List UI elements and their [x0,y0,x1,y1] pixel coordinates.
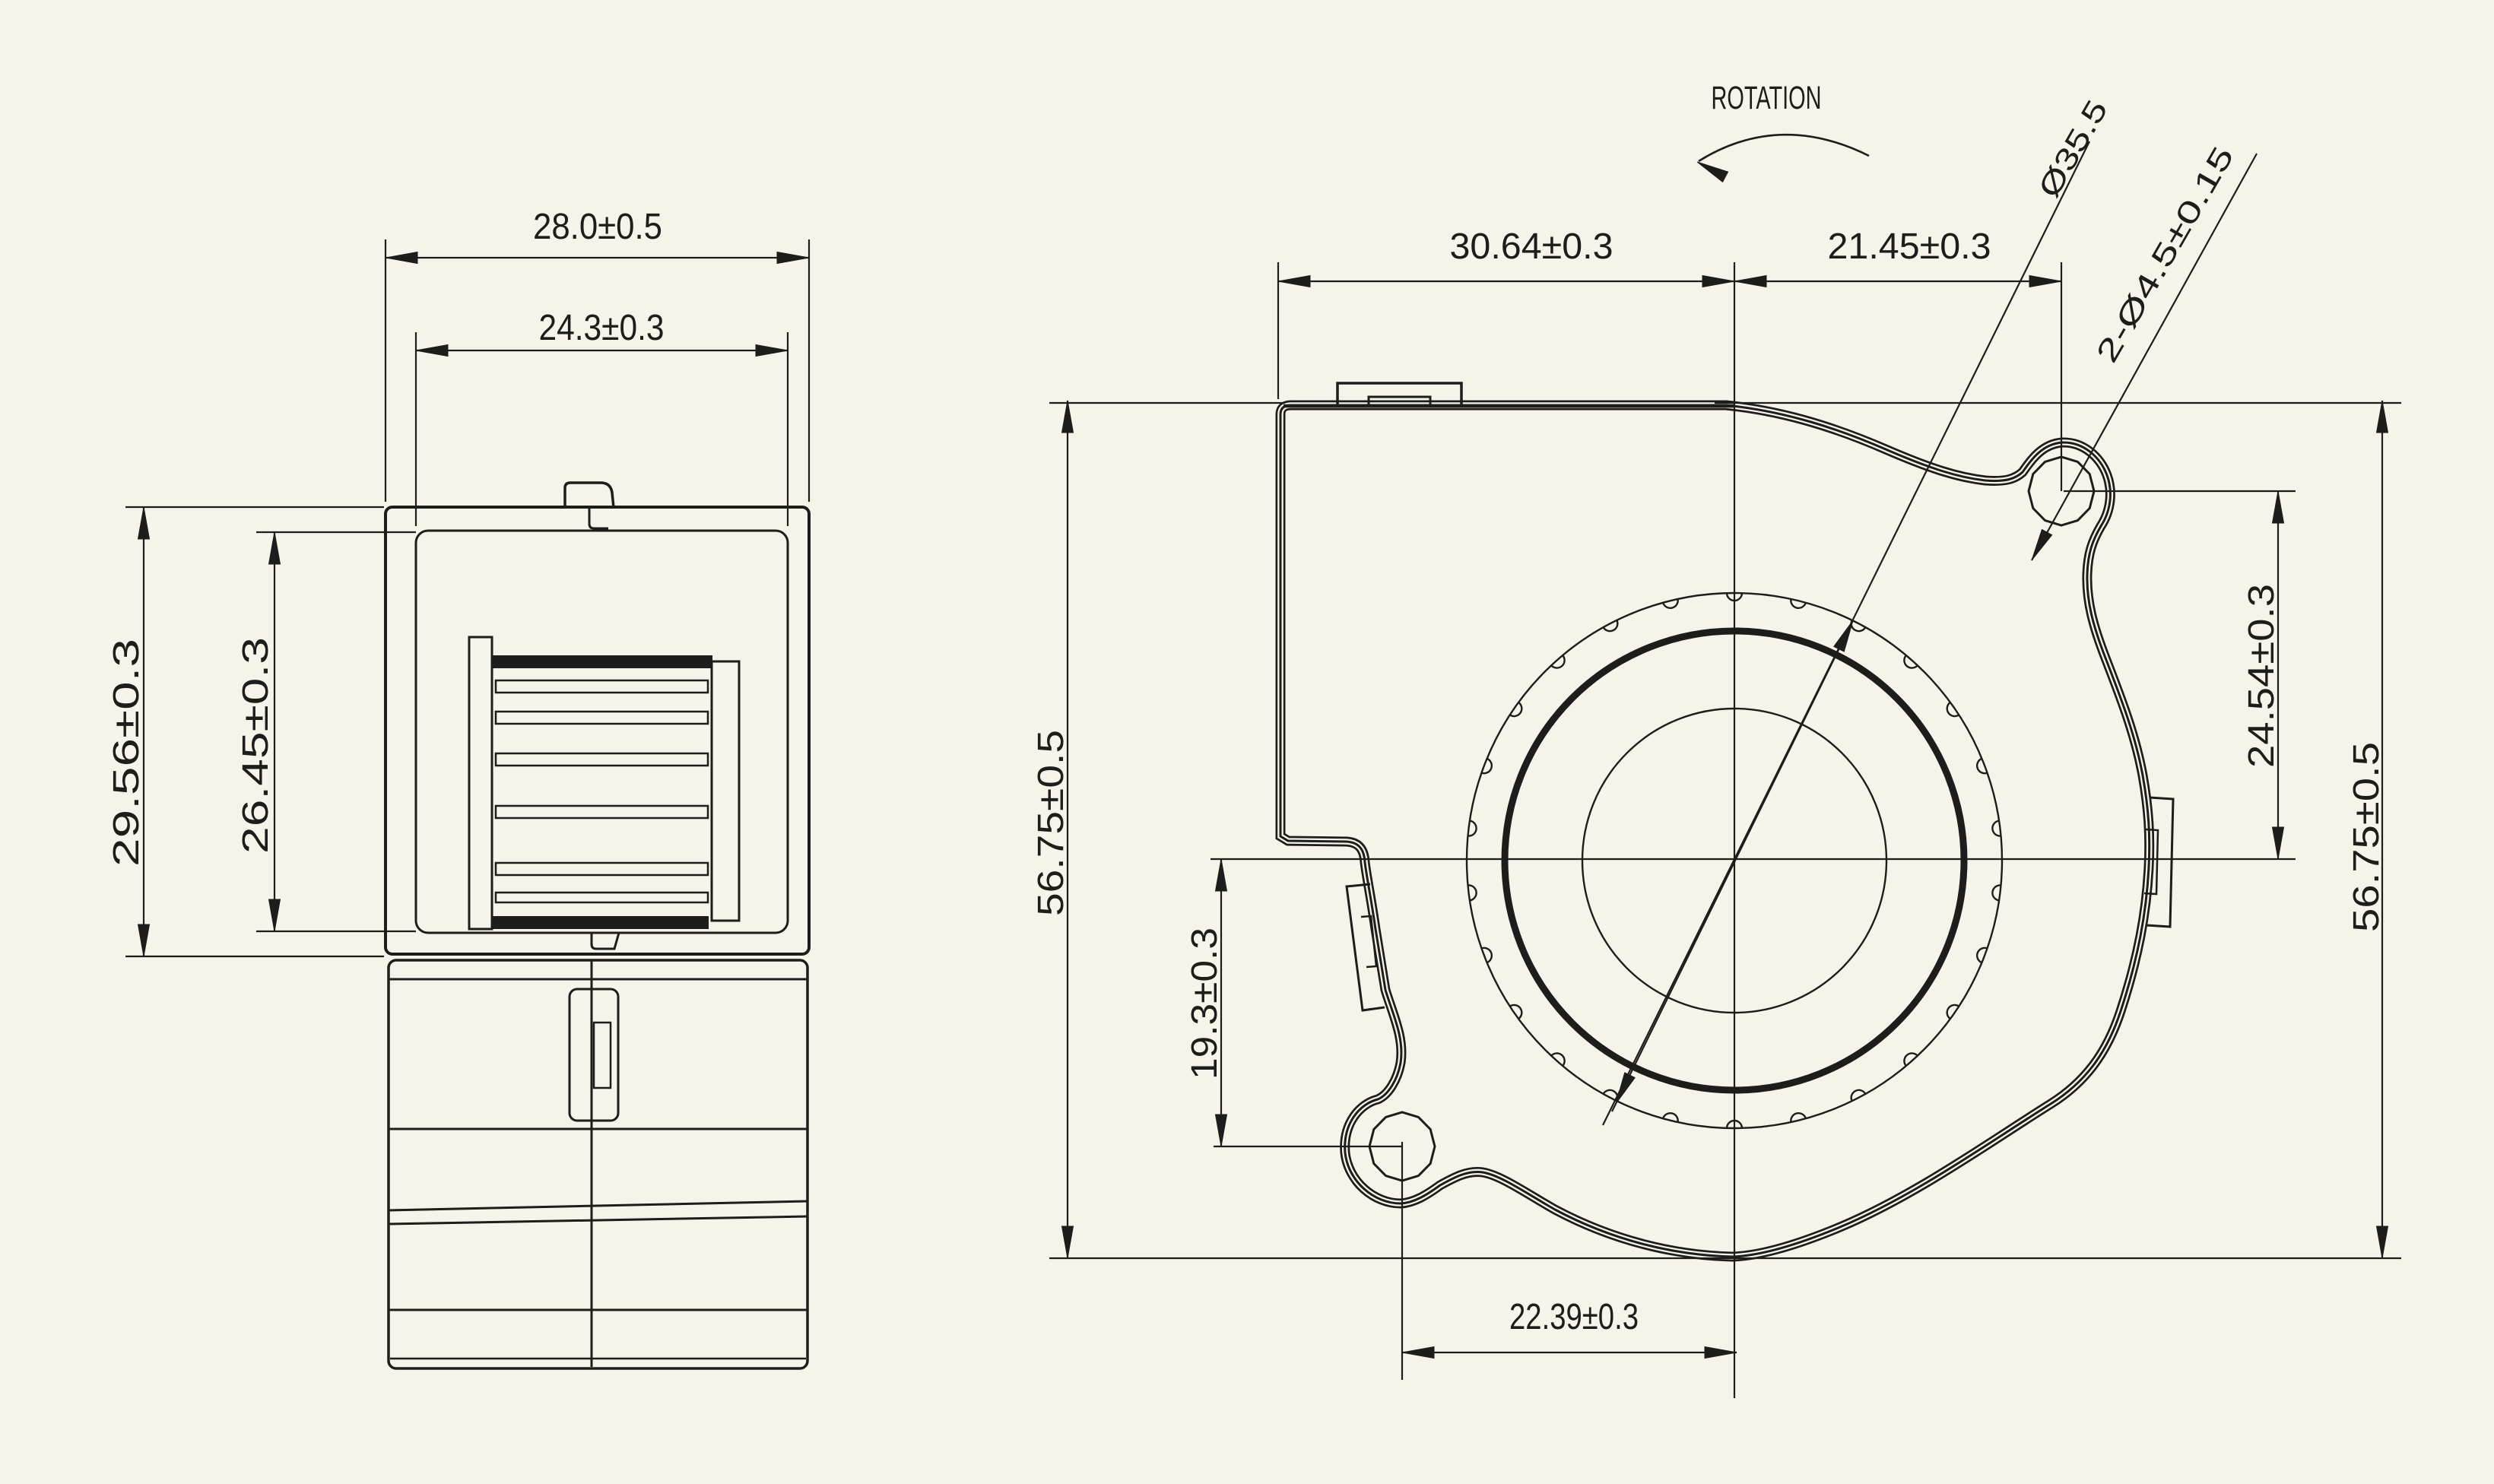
svg-text:30.64±0.3: 30.64±0.3 [1450,227,1613,267]
svg-text:26.45±0.3: 26.45±0.3 [236,637,276,854]
svg-text:19.3±0.3: 19.3±0.3 [1185,927,1225,1080]
svg-text:56.75±0.5: 56.75±0.5 [1031,730,1071,916]
svg-text:29.56±0.3: 29.56±0.3 [106,639,147,867]
svg-text:56.75±0.5: 56.75±0.5 [2346,742,2387,932]
svg-text:28.0±0.5: 28.0±0.5 [533,207,662,247]
svg-text:24.54±0.3: 24.54±0.3 [2242,584,2282,768]
svg-text:ROTATION: ROTATION [1712,80,1822,116]
svg-text:24.3±0.3: 24.3±0.3 [539,308,665,348]
svg-text:21.45±0.3: 21.45±0.3 [1828,227,1991,267]
svg-text:22.39±0.3: 22.39±0.3 [1509,1297,1639,1337]
